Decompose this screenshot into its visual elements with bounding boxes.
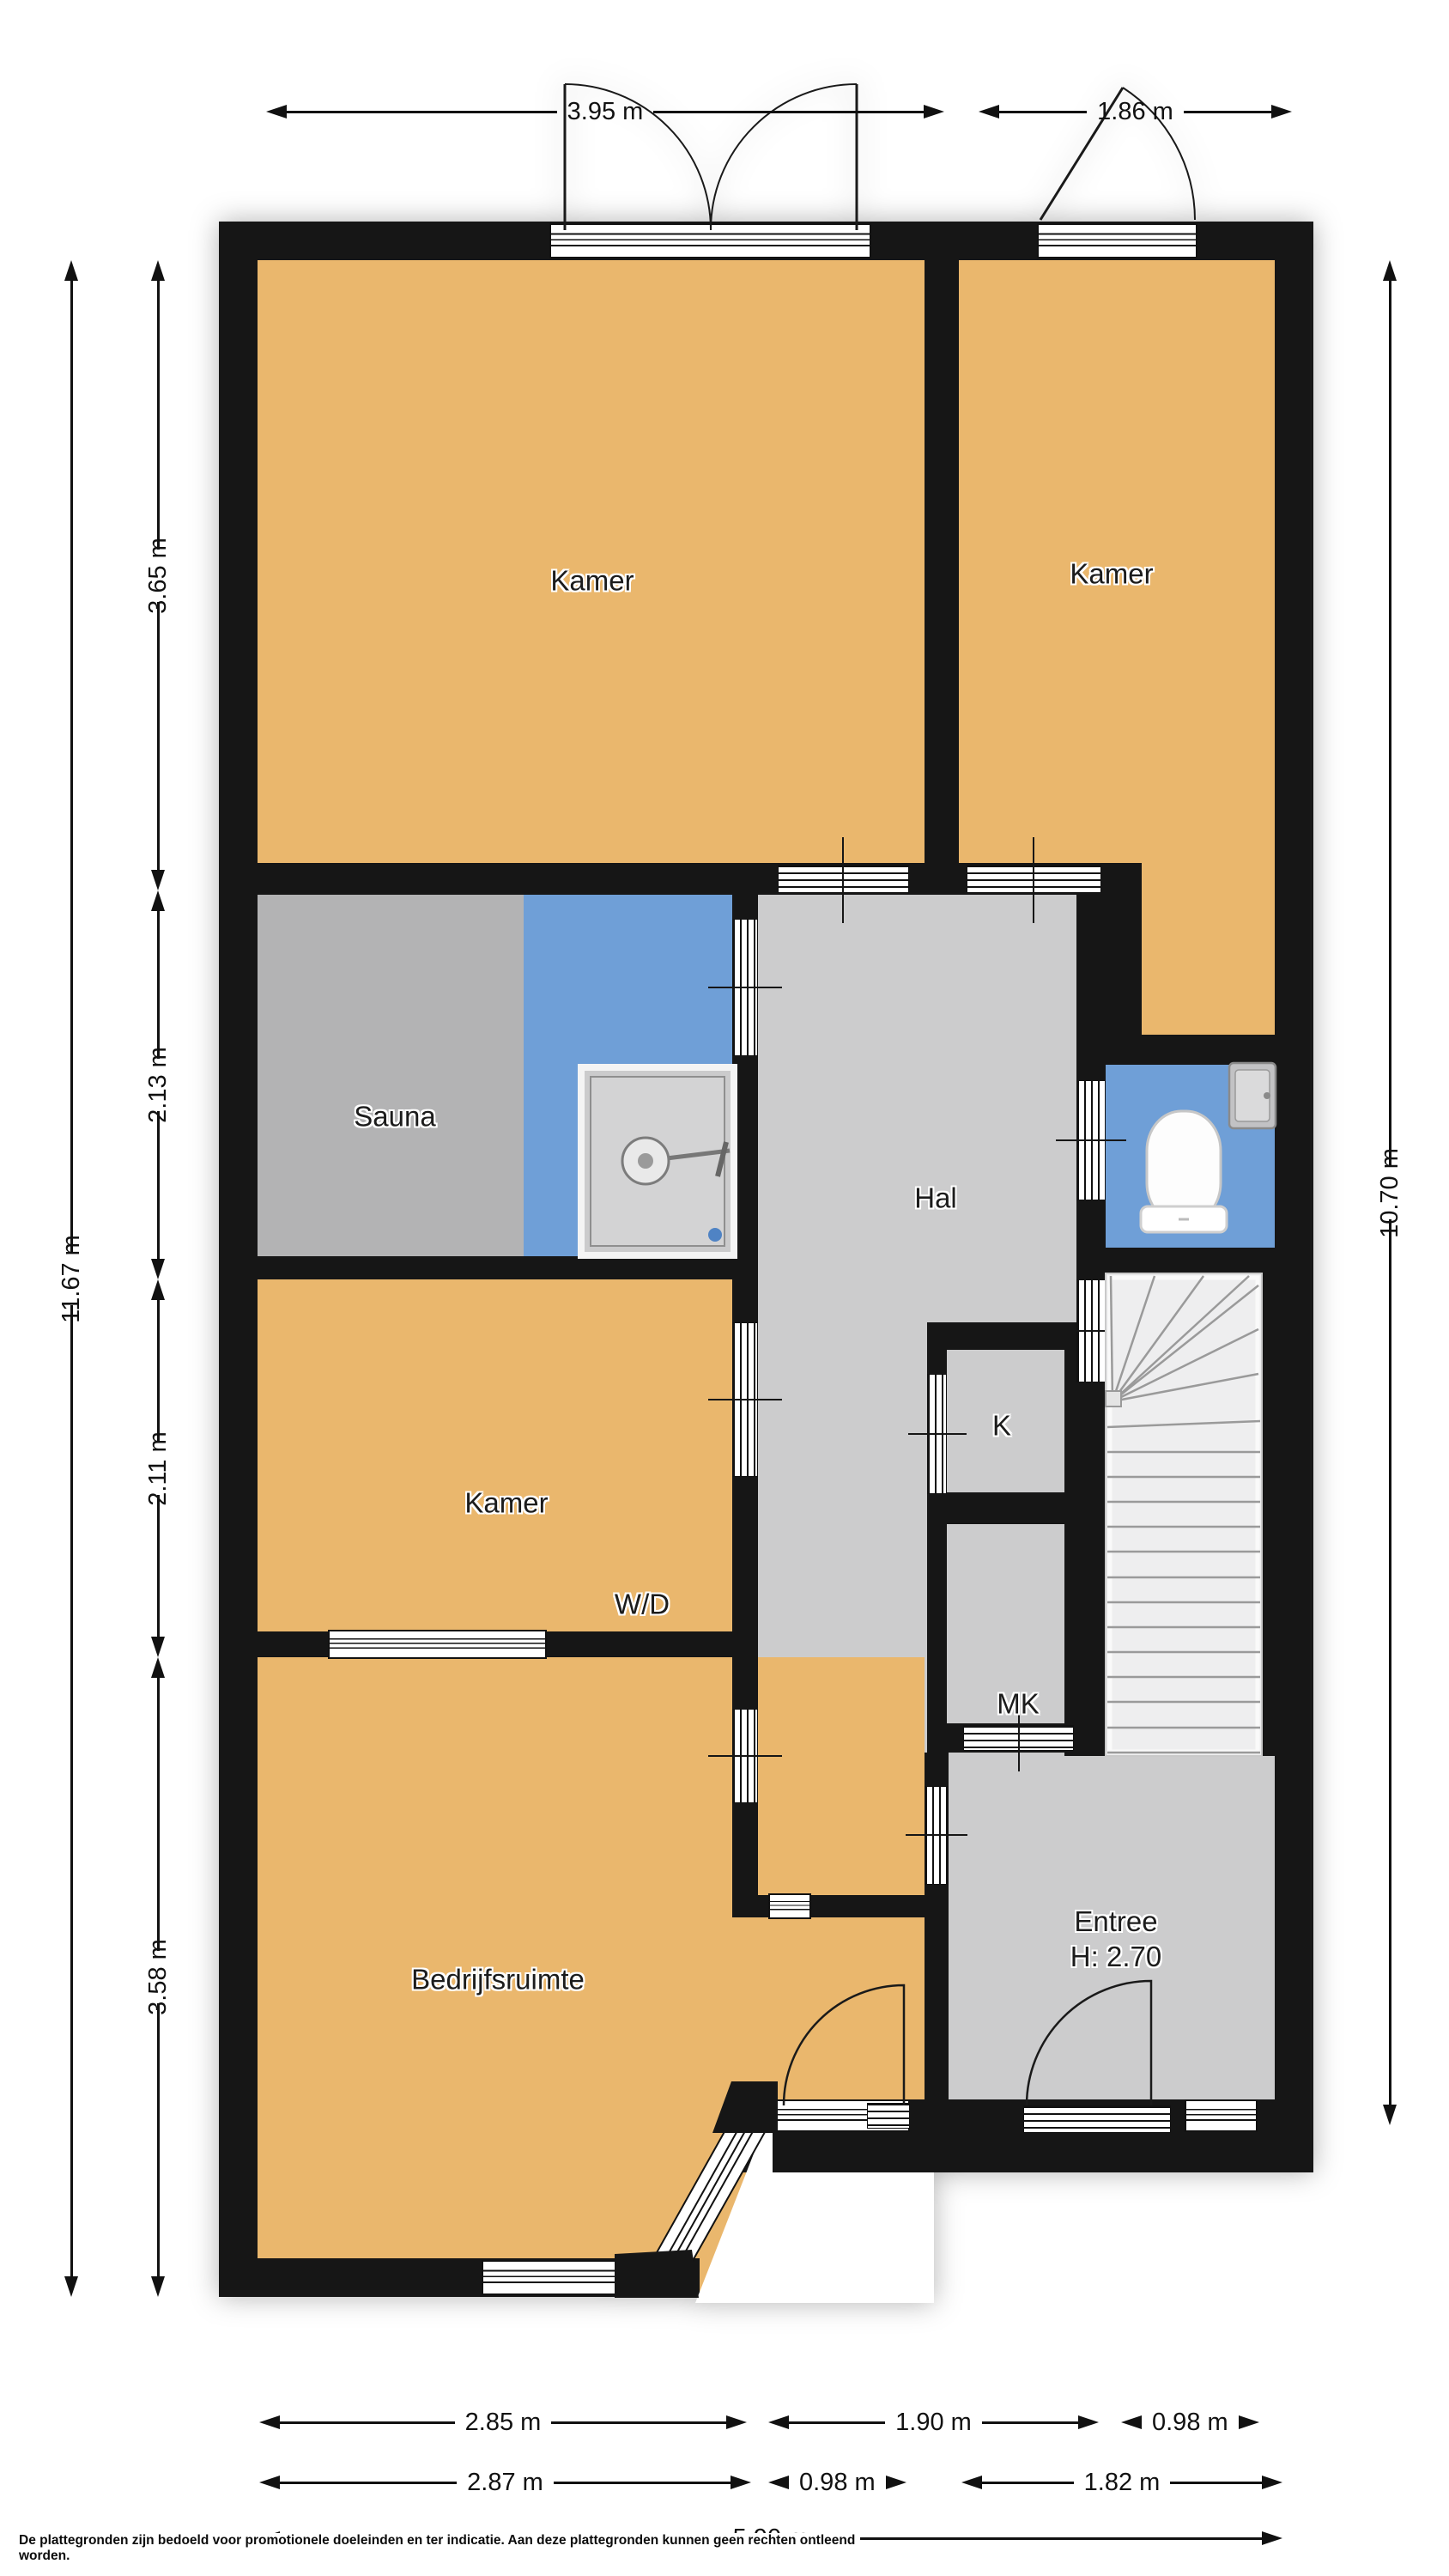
dimension-label: 2.87 m <box>457 2469 554 2497</box>
room-label-hal: Hal <box>914 1180 957 1215</box>
outside-mask <box>771 2172 934 2303</box>
floor-plan: Kamer Kamer Sauna Hal Kamer W/D K MK Bed… <box>0 0 1449 2576</box>
plan-vector-layer <box>0 0 1449 2576</box>
dimension-bottom-r1-3: 0.98 m <box>1121 2409 1282 2436</box>
dimension-left-total: 11.67 m <box>58 260 85 2297</box>
wall-diagonal-pier-lower <box>615 2250 699 2298</box>
staircase <box>1106 1273 1262 1756</box>
dimension-left-seg-1: 3.65 m <box>144 260 172 890</box>
dimension-label: 10.70 m <box>1364 1148 1416 1238</box>
wall-diagonal-pier-upper <box>712 2081 778 2133</box>
dimension-bottom-r2-3: 1.82 m <box>961 2469 1282 2496</box>
entree-height: H: 2.70 <box>1070 1941 1161 1972</box>
dimension-bottom-r1-1: 2.85 m <box>259 2409 747 2436</box>
dimension-bottom-r1-2: 1.90 m <box>768 2409 1099 2436</box>
dimension-label: 11.67 m <box>45 1235 98 1323</box>
door-swing-arc-entree <box>1027 1981 1151 2105</box>
room-label-kamer-middle: Kamer <box>464 1485 548 1520</box>
dimension-label: 0.98 m <box>789 2469 886 2497</box>
shower-icon <box>581 1067 734 1255</box>
dimension-label: 3.58 m <box>132 1939 185 2015</box>
dimension-label: 1.90 m <box>885 2409 982 2437</box>
room-label-k: K <box>992 1407 1011 1443</box>
room-label-mk: MK <box>997 1686 1040 1721</box>
dimension-label: 3.95 m <box>557 98 654 126</box>
toilet-icon <box>1141 1111 1227 1232</box>
dimension-label: 1.82 m <box>1074 2469 1171 2497</box>
dimension-left-seg-2: 2.13 m <box>144 890 172 1279</box>
room-label-bedrijfsruimte: Bedrijfsruimte <box>411 1961 585 1996</box>
room-label-entree: Entree H: 2.70 <box>1070 1904 1161 1975</box>
disclaimer-text: De plattegronden zijn bedoeld voor promo… <box>19 2533 860 2564</box>
dimension-bottom-r2-1: 2.87 m <box>259 2469 751 2496</box>
dimension-label: 2.13 m <box>132 1047 185 1123</box>
dimension-right-total: 10.70 m <box>1376 260 1404 2125</box>
dimension-top-2: 1.86 m <box>979 98 1292 125</box>
dimension-label: 2.11 m <box>132 1431 185 1506</box>
dimension-bottom-r2-2: 0.98 m <box>768 2469 944 2496</box>
entree-name: Entree <box>1074 1905 1157 1937</box>
room-label-kamer-top-left: Kamer <box>550 562 634 598</box>
room-label-sauna: Sauna <box>354 1098 435 1133</box>
door-swing-arc-bedrijfsruimte <box>784 1985 904 2105</box>
room-label-kamer-top-right: Kamer <box>1070 556 1153 591</box>
stair-newel <box>1106 1391 1121 1406</box>
dimension-label: 2.85 m <box>455 2409 552 2437</box>
sink-icon <box>1229 1063 1276 1128</box>
dimension-label: 1.86 m <box>1087 98 1184 126</box>
dimension-left-seg-3: 2.11 m <box>144 1279 172 1657</box>
dimension-left-seg-4: 3.58 m <box>144 1657 172 2297</box>
room-label-wd: W/D <box>615 1586 670 1621</box>
dimension-top-1: 3.95 m <box>266 98 944 125</box>
dimension-label: 0.98 m <box>1142 2409 1239 2437</box>
dimension-label: 3.65 m <box>132 538 185 614</box>
